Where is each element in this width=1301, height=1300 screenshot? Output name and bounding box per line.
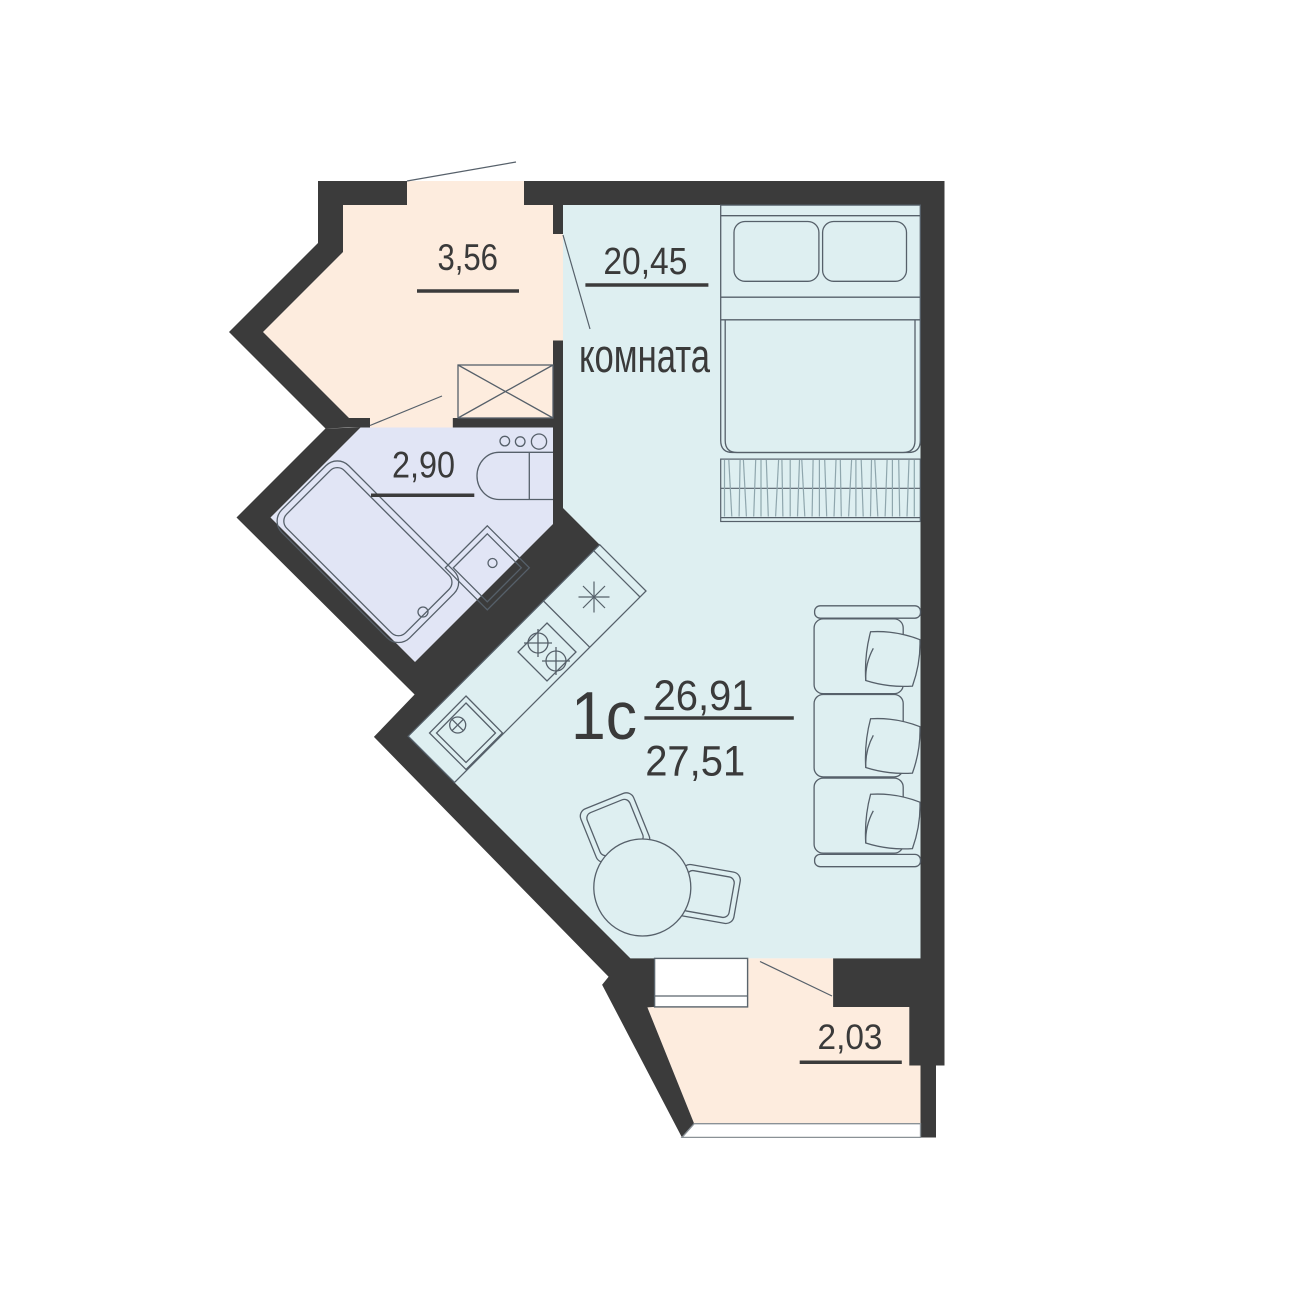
svg-text:1с: 1с xyxy=(571,678,637,754)
svg-text:комната: комната xyxy=(579,329,711,382)
svg-text:3,56: 3,56 xyxy=(437,237,498,278)
svg-text:2,90: 2,90 xyxy=(392,445,455,486)
svg-text:20,45: 20,45 xyxy=(603,241,687,283)
svg-text:27,51: 27,51 xyxy=(645,738,745,786)
svg-text:2,03: 2,03 xyxy=(818,1018,883,1057)
svg-text:26,91: 26,91 xyxy=(654,672,754,720)
